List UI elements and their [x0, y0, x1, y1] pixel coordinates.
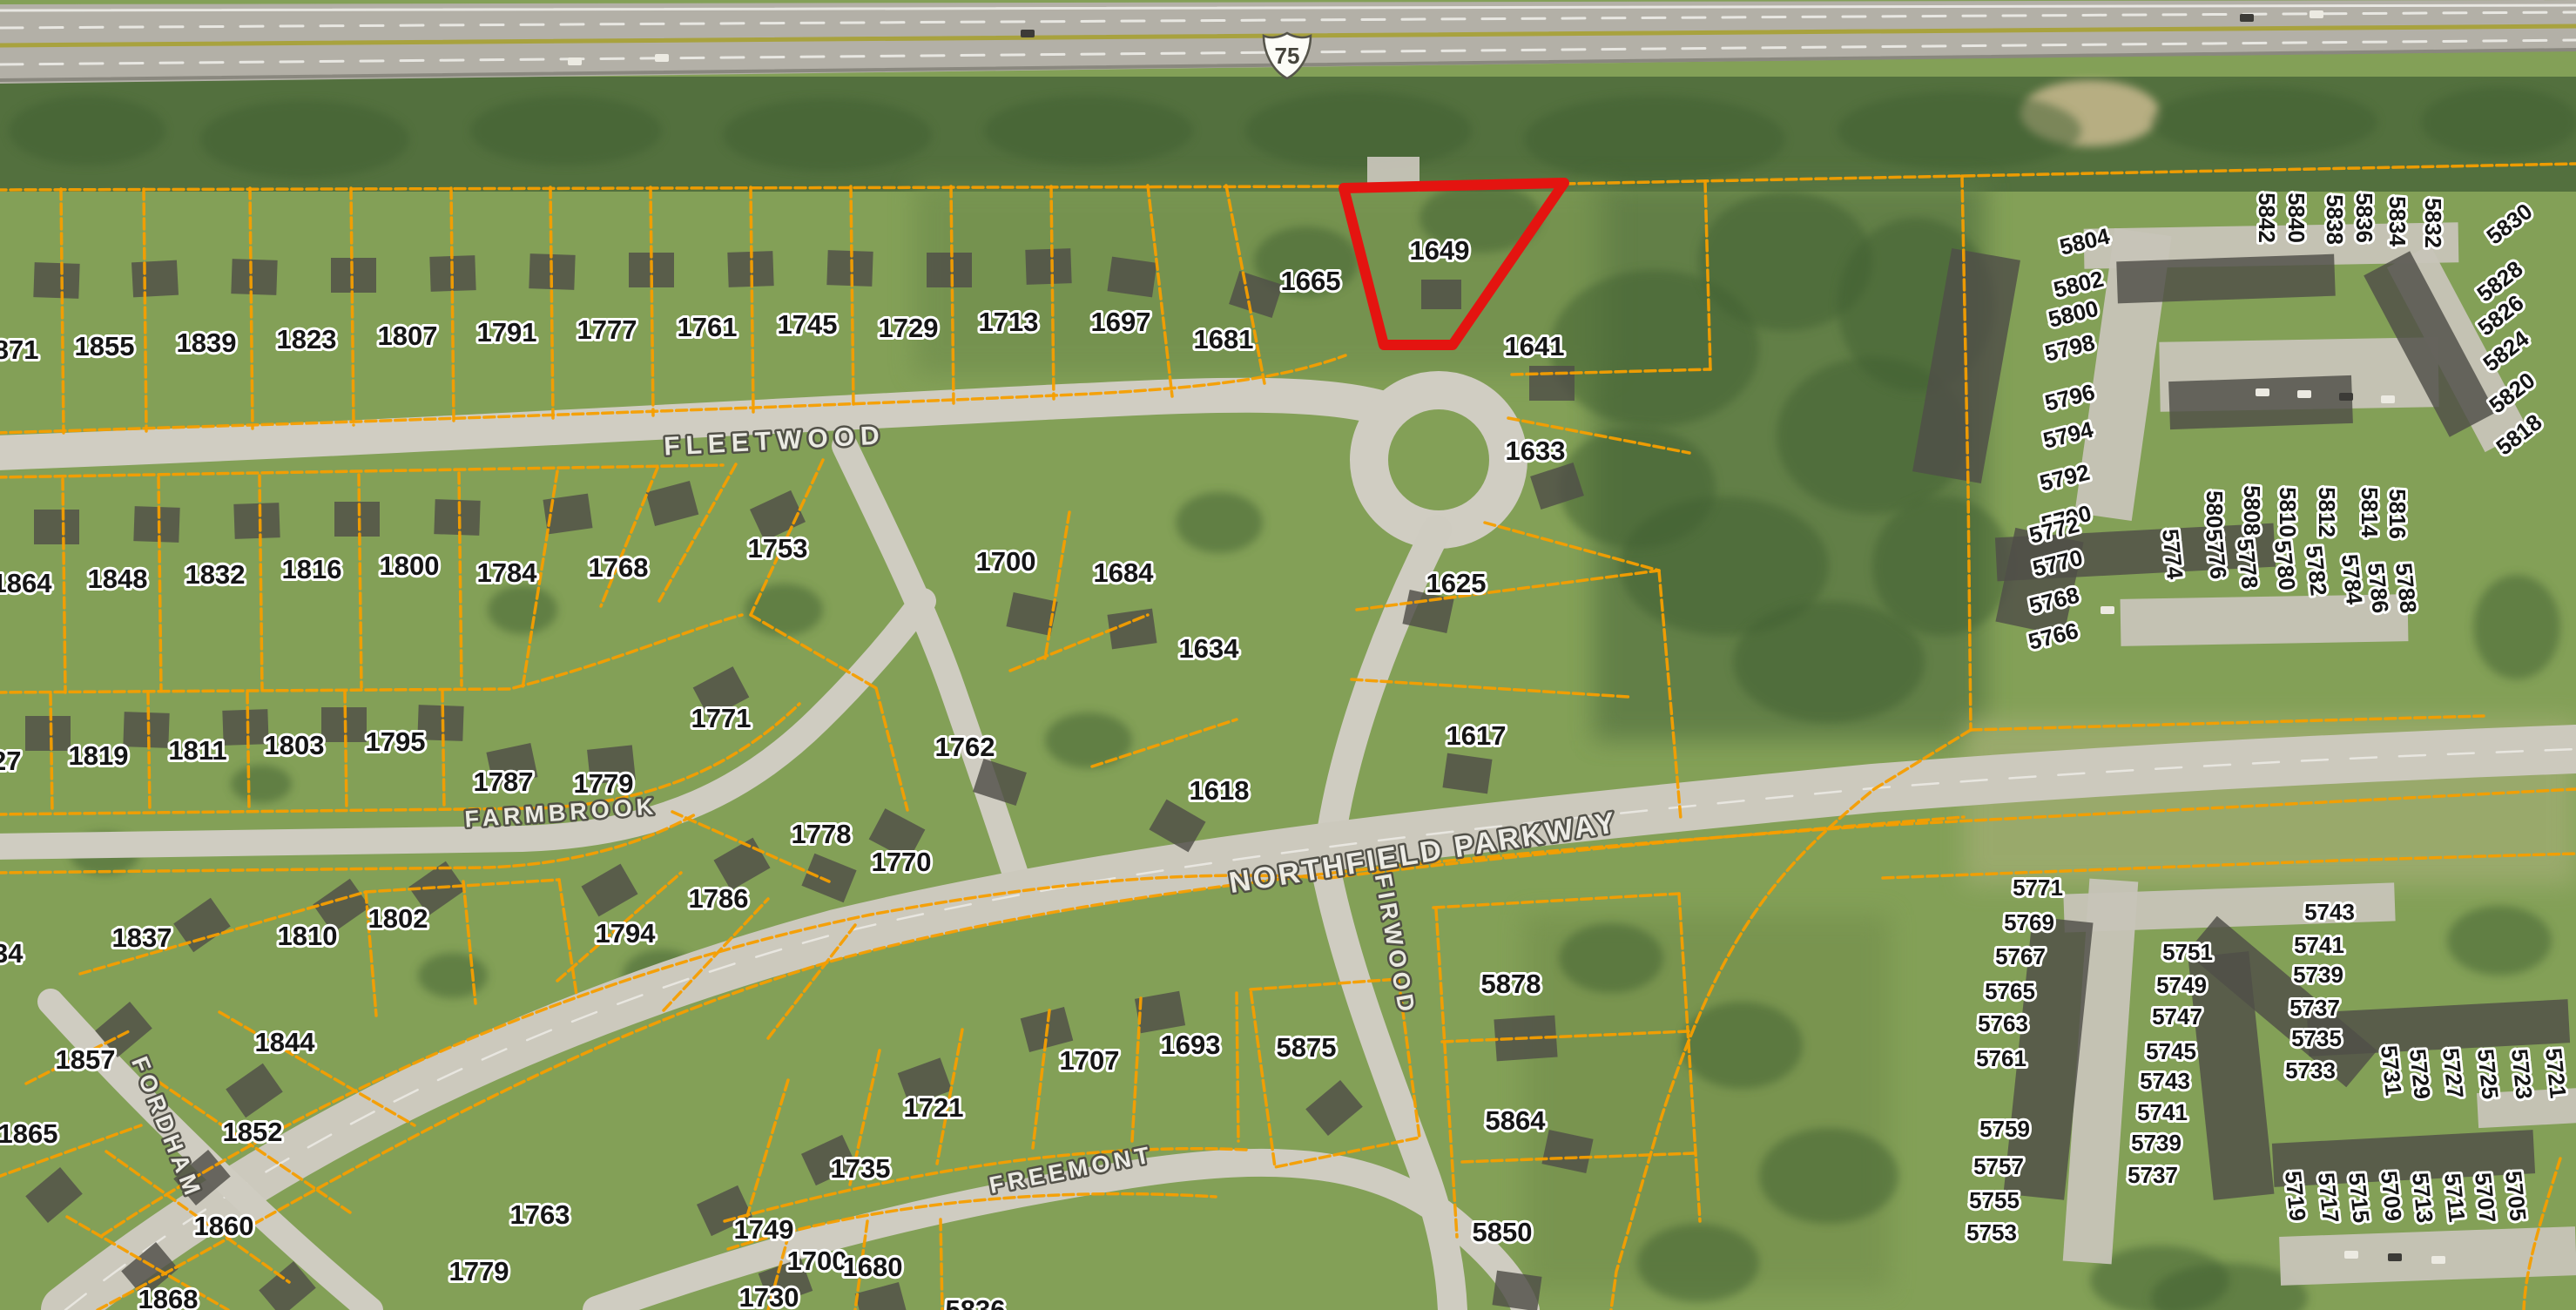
parcel-label-1778: 1778: [792, 819, 852, 849]
car: [2240, 14, 2254, 22]
parcel-label-1729: 1729: [879, 313, 939, 343]
parcel-label-5763: 5763: [1978, 1010, 2028, 1037]
building-roof: [25, 716, 71, 751]
building-roof: [2168, 375, 2353, 429]
parcel-label-5771: 5771: [2013, 874, 2063, 901]
car: [2256, 388, 2269, 396]
parcel-label-1864: 1864: [0, 568, 52, 598]
parcel-label-1810: 1810: [278, 921, 338, 951]
parcel-label-1649: 1649: [1410, 235, 1470, 266]
car: [2381, 395, 2395, 403]
parcel-label-5834: 5834: [2384, 196, 2411, 246]
parcel-label-5749: 5749: [2156, 972, 2207, 998]
parcel-label-5757: 5757: [1973, 1153, 2024, 1179]
parcel-label-5731: 5731: [2376, 1044, 2407, 1097]
building-roof: [131, 260, 179, 298]
parcel-label-5767: 5767: [1995, 943, 2046, 969]
parcel-label-1707: 1707: [1060, 1045, 1120, 1076]
car: [2101, 606, 2114, 614]
parcel-label-5741: 5741: [2137, 1099, 2188, 1125]
parcel-label-1802: 1802: [368, 903, 428, 934]
parcel-label-5715: 5715: [2343, 1172, 2375, 1225]
tree-canopy: [1838, 91, 2081, 170]
parcel-label-1844: 1844: [255, 1027, 316, 1057]
car: [2297, 390, 2311, 398]
parcel-label-5776: 5776: [2201, 528, 2232, 581]
parcel-label-1617: 1617: [1446, 720, 1507, 751]
parcel-label-5707: 5707: [2470, 1172, 2501, 1225]
shield-number: 75: [1275, 43, 1300, 69]
parcel-label-1779: 1779: [449, 1256, 509, 1286]
tree-canopy: [745, 584, 823, 636]
parcel-boundary-line: [247, 692, 249, 810]
parcel-label-1768: 1768: [589, 552, 649, 583]
parcel-label-1839: 1839: [177, 327, 237, 358]
parcel-label-1795: 1795: [366, 726, 426, 757]
parcel-label-1618: 1618: [1190, 775, 1250, 806]
parcel-label-5717: 5717: [2313, 1172, 2344, 1225]
parcel-label-5739: 5739: [2131, 1130, 2182, 1156]
parcel-label-5765: 5765: [1985, 978, 2035, 1004]
parcel-label-1665: 1665: [1281, 266, 1341, 296]
tree-canopy: [1176, 492, 1263, 553]
parcel-label-1735: 1735: [831, 1153, 891, 1184]
parcel-label-5755: 5755: [1969, 1187, 2020, 1213]
tree-canopy: [1733, 601, 1925, 723]
parcel-label-5727: 5727: [2438, 1047, 2469, 1100]
tree-canopy: [723, 98, 932, 172]
parcel-label-5808: 5808: [2239, 485, 2265, 536]
parcel-label-1693: 1693: [1161, 1030, 1221, 1060]
parcel-label-1721: 1721: [904, 1092, 964, 1123]
parcel-boundary-line: [51, 694, 52, 812]
parcel-label-5759: 5759: [1979, 1116, 2030, 1142]
parcel-label-5850: 5850: [1473, 1217, 1533, 1247]
parcel-label-1807: 1807: [378, 321, 438, 351]
parcel-boundary-line: [345, 692, 347, 809]
aerial-parcel-map[interactable]: 75 FLEETWOODFARMBROOKNORTHFIELD PARKWAYF…: [0, 0, 2576, 1310]
parcel-label-5705: 5705: [2500, 1170, 2532, 1223]
parcel-label-5788: 5788: [2391, 562, 2422, 615]
parcel-label-5737: 5737: [2289, 995, 2340, 1021]
tree-canopy: [1872, 496, 2012, 636]
tree-canopy: [9, 96, 165, 165]
parcel-boundary-line: [148, 693, 150, 811]
building-roof: [123, 712, 169, 748]
parcel-label-1749: 1749: [734, 1214, 794, 1245]
building-roof: [133, 506, 179, 543]
parcel-label-5753: 5753: [1966, 1219, 2017, 1246]
building-roof: [927, 253, 972, 287]
tree-canopy: [2421, 87, 2576, 157]
building-roof: [233, 503, 280, 539]
parcel-label-1633: 1633: [1506, 436, 1566, 466]
parcel-label-1868: 1868: [138, 1284, 199, 1310]
parcel-label-1779: 1779: [574, 768, 634, 799]
parcel-label-5878: 5878: [1481, 969, 1541, 999]
tree-canopy: [2447, 906, 2552, 976]
parcel-label-1784: 1784: [477, 557, 538, 588]
parcel-label-1625: 1625: [1426, 568, 1487, 598]
parcel-label-5875: 5875: [1277, 1032, 1337, 1063]
car: [2388, 1253, 2402, 1261]
parcel-label-5778: 5778: [2232, 537, 2263, 591]
parcel-label-5842: 5842: [2254, 192, 2280, 243]
parcel-label-5832: 5832: [2420, 198, 2446, 248]
parcel-label-1803: 1803: [265, 730, 325, 760]
parcel-label-5741: 5741: [2294, 932, 2344, 958]
parcel-label-5814: 5814: [2357, 487, 2383, 537]
building-roof: [334, 502, 380, 537]
parcel-label-5836: 5836: [2351, 192, 2377, 243]
parcel-label-1763: 1763: [510, 1199, 570, 1230]
parcel-label-1819: 1819: [69, 740, 129, 771]
building-roof: [826, 250, 873, 287]
parcel-label-1800: 1800: [380, 550, 440, 581]
parcel-label-5812: 5812: [2314, 487, 2340, 537]
parcel-label-5782: 5782: [2301, 544, 2332, 598]
building-roof: [1442, 753, 1492, 794]
parcel-label-1823: 1823: [277, 324, 337, 355]
parcel-label-1871: 1871: [0, 334, 38, 365]
parcel-label-1761: 1761: [678, 312, 738, 342]
parcel-label-1865: 1865: [0, 1118, 57, 1149]
parcel-label-5786: 5786: [2363, 562, 2394, 615]
parcel-label-5743: 5743: [2140, 1068, 2190, 1094]
building-roof: [222, 709, 268, 746]
tree-canopy: [200, 100, 409, 179]
parcel-label-1762: 1762: [935, 732, 995, 762]
parcel-label-1753: 1753: [748, 533, 808, 564]
tree-canopy: [470, 96, 662, 165]
parcel-label-5774: 5774: [2157, 528, 2188, 581]
parcel-label-1730: 1730: [739, 1282, 799, 1310]
parcel-label-1832: 1832: [185, 559, 246, 590]
parcel-label-5816: 5816: [2384, 489, 2411, 539]
parcel-label-1786: 1786: [689, 883, 749, 914]
parcel-label-5836: 5836: [946, 1294, 1006, 1310]
parcel-label-1857: 1857: [56, 1044, 116, 1075]
parcel-label-5725: 5725: [2472, 1048, 2504, 1101]
parcel-label-5769: 5769: [2004, 909, 2054, 935]
parcel-label-1860: 1860: [194, 1211, 254, 1241]
tree-canopy: [1559, 923, 1663, 993]
tree-canopy: [2473, 575, 2560, 679]
parking-lot: [2279, 1226, 2576, 1286]
parcel-label-5745: 5745: [2146, 1038, 2196, 1064]
parcel-label-5743: 5743: [2304, 899, 2355, 925]
parcel-label-5840: 5840: [2283, 192, 2310, 243]
car: [568, 57, 582, 65]
tree-canopy: [1559, 427, 1716, 549]
parcel-label-1787: 1787: [474, 766, 534, 797]
parcel-label-5729: 5729: [2404, 1048, 2436, 1101]
parcel-label-5751: 5751: [2162, 939, 2213, 965]
building-roof: [1107, 257, 1157, 298]
parcel-label-1834: 1834: [0, 938, 24, 969]
parcel-label-5784: 5784: [2337, 553, 2368, 606]
parcel-label-1791: 1791: [477, 317, 537, 348]
parcel-label-1680: 1680: [843, 1252, 903, 1282]
parcel-label-5810: 5810: [2275, 487, 2301, 537]
tree-canopy: [2151, 87, 2377, 157]
parcel-label-1634: 1634: [1179, 633, 1240, 664]
parcel-label-1811: 1811: [168, 735, 226, 766]
building-roof: [33, 262, 79, 299]
parcel-label-1770: 1770: [872, 847, 932, 877]
parcel-label-1745: 1745: [778, 309, 838, 340]
parcel-label-5711: 5711: [2439, 1172, 2471, 1223]
parcel-label-1794: 1794: [596, 918, 657, 949]
parcel-label-1816: 1816: [282, 554, 342, 584]
tree-canopy: [1045, 712, 1132, 768]
parcel-label-1681: 1681: [1194, 324, 1254, 355]
car: [2310, 10, 2323, 18]
tree-canopy: [488, 585, 557, 634]
building-roof: [231, 259, 277, 295]
parcel-label-1713: 1713: [979, 307, 1039, 337]
building-roof: [1421, 280, 1461, 309]
car: [655, 54, 669, 62]
tree-canopy: [984, 96, 1193, 165]
tree-canopy: [1245, 91, 1472, 170]
building-roof: [1529, 366, 1575, 401]
parcel-label-5780: 5780: [2269, 539, 2301, 592]
building-roof: [1492, 1271, 1541, 1310]
parcel-label-5713: 5713: [2407, 1172, 2438, 1225]
parcel-label-5737: 5737: [2128, 1162, 2178, 1188]
parcel-label-1855: 1855: [75, 331, 135, 361]
building-roof: [2116, 254, 2336, 304]
parcel-label-5719: 5719: [2280, 1170, 2311, 1223]
parcel-label-5739: 5739: [2293, 962, 2343, 988]
tree-canopy: [1759, 1128, 1898, 1224]
parcel-label-5761: 5761: [1976, 1045, 2026, 1071]
parcel-label-5747: 5747: [2152, 1003, 2202, 1030]
parcel-label-1848: 1848: [88, 564, 148, 594]
car: [1021, 30, 1035, 37]
parcel-label-1852: 1852: [223, 1117, 283, 1147]
parcel-label-1700: 1700: [787, 1246, 847, 1276]
tree-canopy: [418, 953, 488, 998]
tree-canopy: [1524, 96, 1785, 183]
parcel-boundary-line: [1237, 993, 1238, 1141]
tree-canopy: [231, 765, 292, 803]
parcel-label-1684: 1684: [1094, 557, 1155, 588]
building-roof: [1025, 248, 1071, 285]
parcel-label-1641: 1641: [1505, 331, 1565, 361]
parcel-label-5723: 5723: [2506, 1048, 2538, 1101]
parcel-label-5735: 5735: [2291, 1025, 2342, 1051]
parcel-label-1777: 1777: [577, 314, 637, 345]
car: [2344, 1251, 2358, 1259]
parcel-label-1771: 1771: [691, 703, 752, 733]
parcel-label-5838: 5838: [2322, 194, 2348, 245]
tree-canopy: [1637, 1224, 1759, 1302]
parcel-label-1837: 1837: [112, 922, 172, 953]
building-roof: [434, 499, 480, 536]
parcel-boundary-line: [442, 691, 444, 808]
building-roof: [34, 510, 79, 544]
parcel-label-5864: 5864: [1486, 1105, 1547, 1136]
car: [2431, 1256, 2445, 1264]
parcel-label-5733: 5733: [2285, 1057, 2336, 1084]
parcel-label-1700: 1700: [976, 546, 1036, 577]
parcel-label-5709: 5709: [2376, 1170, 2407, 1223]
parcel-label-5721: 5721: [2540, 1047, 2572, 1100]
car: [2339, 393, 2353, 401]
parcel-label-1827: 1827: [0, 746, 21, 776]
parcel-label-1697: 1697: [1091, 307, 1151, 337]
